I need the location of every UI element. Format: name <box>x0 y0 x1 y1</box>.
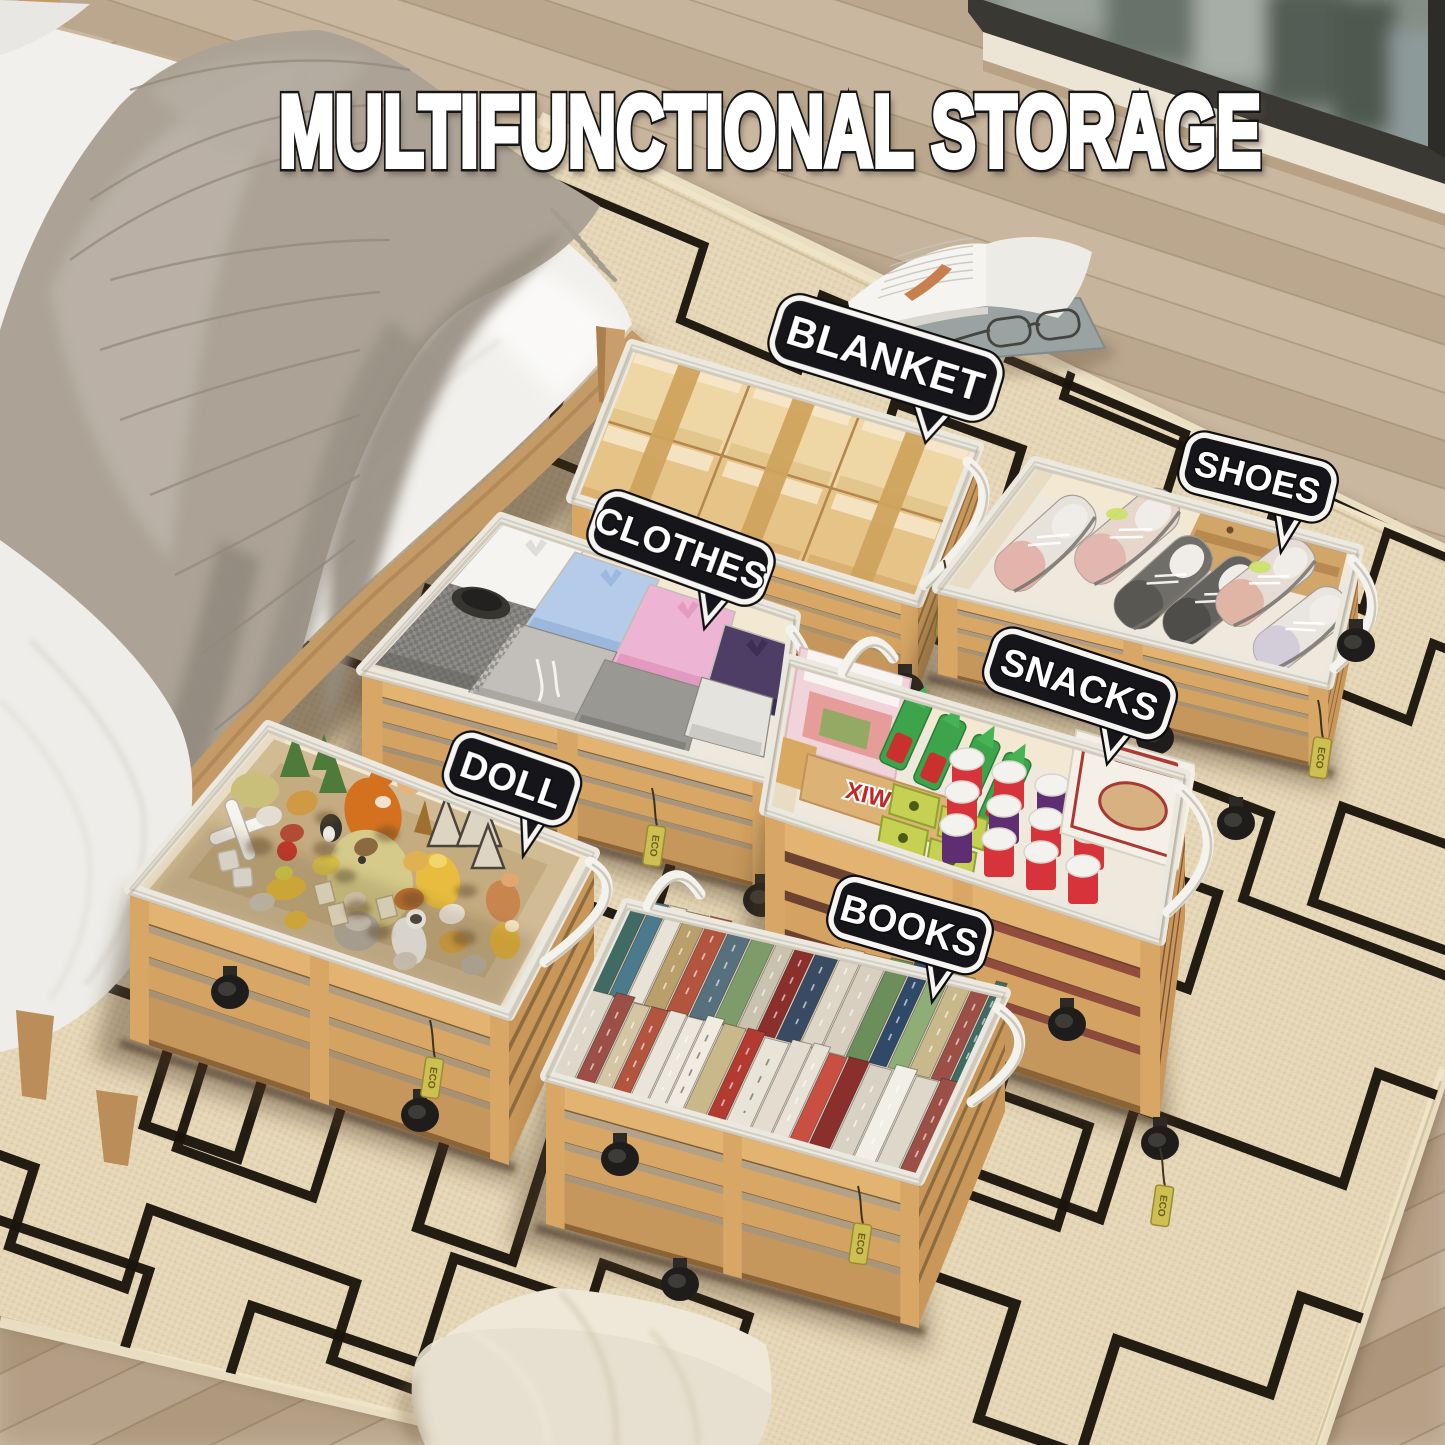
svg-text:MULTIFUNCTIONAL STORAGE: MULTIFUNCTIONAL STORAGE <box>279 76 1261 188</box>
